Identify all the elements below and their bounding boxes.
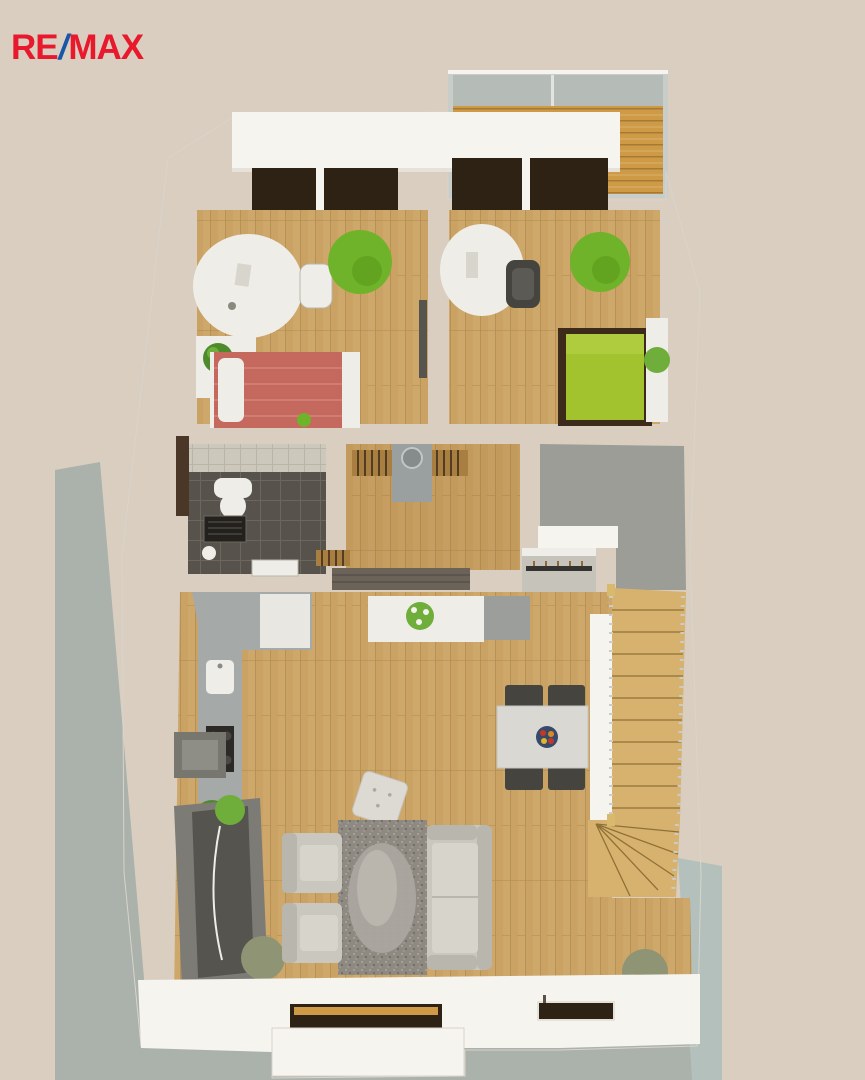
bedroom-left-window	[252, 168, 398, 210]
shoe-rack	[352, 450, 392, 476]
range-hood	[174, 732, 226, 778]
bed-sheen	[566, 334, 644, 354]
dining-chair	[548, 685, 585, 709]
staircase	[588, 584, 686, 897]
bed-pillow	[218, 358, 244, 422]
ground-left	[55, 462, 146, 1080]
fruit	[548, 738, 554, 744]
bed-cushion	[297, 413, 311, 427]
shower-head	[202, 546, 216, 560]
armchair-seat	[300, 915, 338, 951]
table-sheen	[357, 850, 397, 926]
desk-monitor	[466, 252, 478, 278]
toilet-bowl	[220, 493, 246, 519]
desk-item	[228, 302, 236, 310]
shower-drain	[204, 516, 246, 542]
wardrobe-rod	[526, 566, 592, 571]
console-unit	[368, 596, 530, 642]
flower	[416, 619, 422, 625]
armchair-back	[282, 903, 297, 963]
bathroom	[176, 436, 326, 576]
balcony-rail-top-edge	[448, 70, 668, 74]
bathroom-wall-tiles	[188, 444, 326, 472]
faucet	[218, 664, 223, 669]
logo-max: MAX	[68, 28, 143, 67]
bowl	[536, 726, 558, 748]
office-chair	[300, 264, 332, 308]
armchair-seat	[300, 845, 338, 881]
console-grey	[484, 596, 530, 640]
bay-window-sill-wood	[294, 1007, 438, 1015]
washbasin	[252, 560, 298, 576]
hallway	[316, 444, 520, 590]
hood-top	[182, 740, 218, 770]
sideboard-top	[332, 568, 470, 590]
armchair-back	[282, 833, 297, 893]
coffee-table	[348, 843, 416, 953]
fruit	[541, 738, 547, 744]
rail-post	[607, 814, 615, 826]
dining-area	[497, 685, 588, 790]
dining-chair	[505, 685, 543, 709]
armchair	[282, 903, 342, 963]
shoe-rack	[316, 550, 350, 566]
fruit-bowl	[536, 726, 558, 748]
plant-olive	[241, 936, 285, 980]
drain-grate	[204, 516, 246, 542]
rail-post	[607, 584, 615, 596]
fridge-cabinet	[260, 594, 310, 648]
logo-re: RE	[11, 28, 58, 67]
hall-bowl	[402, 448, 422, 468]
bed-red	[210, 352, 360, 428]
bedroom-left	[193, 210, 428, 428]
plant	[215, 795, 245, 825]
remax-logo: RE/MAX	[11, 30, 143, 65]
stair-flight	[612, 588, 686, 820]
sofa-arm	[427, 825, 477, 840]
flower	[423, 609, 429, 615]
window-opening	[538, 1002, 614, 1020]
bean-bag-shade	[352, 256, 382, 286]
office-chair-seat	[512, 268, 534, 300]
sofa-back	[477, 825, 492, 970]
window-handle	[543, 995, 546, 1003]
bed-green	[558, 328, 652, 426]
bedroom-right-window	[452, 158, 608, 210]
dining-chair	[505, 766, 543, 790]
tv-panel	[419, 300, 427, 378]
armchair	[282, 833, 342, 893]
floorplan-render	[0, 0, 865, 1080]
fruit	[548, 731, 554, 737]
bay-window-box	[272, 1028, 464, 1076]
window-mullion	[316, 168, 324, 210]
logo-slash: /	[58, 28, 69, 67]
dining-chair	[548, 766, 585, 790]
sofa-arm	[427, 955, 477, 970]
sofa	[427, 825, 492, 970]
wardrobe-shelf	[522, 548, 596, 556]
bay-window	[272, 1004, 464, 1076]
flower	[411, 607, 417, 613]
bedroom-right	[440, 210, 670, 426]
flower-plant	[406, 602, 434, 630]
stair-winder	[588, 820, 680, 897]
balcony-glass-divider	[551, 75, 554, 106]
window-mullion	[522, 158, 530, 210]
stair-wall	[590, 614, 612, 822]
fruit	[540, 730, 546, 736]
plant	[644, 347, 670, 373]
sideboard	[332, 568, 470, 590]
bathroom-door	[176, 436, 189, 516]
page-background	[0, 0, 865, 1080]
bean-bag-shade	[592, 256, 620, 284]
wardrobe	[522, 548, 596, 592]
storage-wall	[538, 526, 618, 548]
rack-base	[316, 550, 350, 566]
